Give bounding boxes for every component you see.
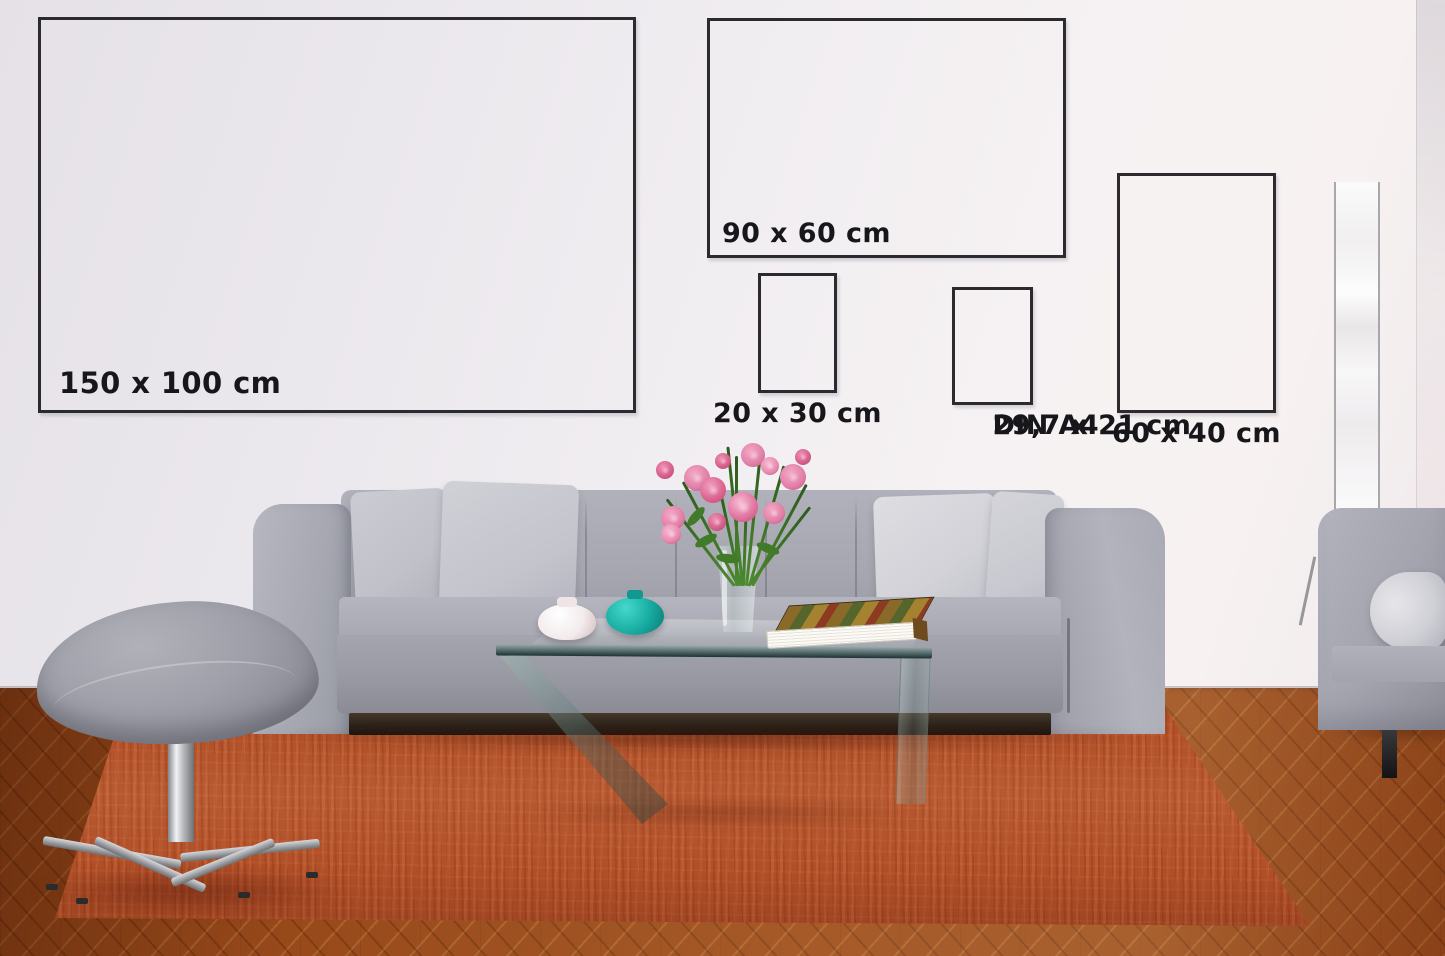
table-leg-right: [895, 656, 930, 804]
sofa-right: [1318, 508, 1445, 730]
throw-pillow: [439, 481, 579, 614]
floor-lamp: [1334, 182, 1380, 510]
flower-bloom: [795, 449, 811, 465]
sofa-seam: [585, 498, 587, 606]
flower-bloom: [715, 453, 731, 469]
poster-size-guide-scene: 150 x 100 cm 90 x 60 cm 20 x 30 cm DIN A…: [0, 0, 1445, 956]
size-label-60x40: 60 x 40 cm: [1112, 418, 1281, 449]
flower-bloom: [656, 461, 674, 479]
size-frame-90x60: 90 x 60 cm: [707, 18, 1066, 258]
size-label-150x100: 150 x 100 cm: [59, 367, 281, 400]
size-frame-60x40: 60 x 40 cm: [1117, 173, 1276, 413]
throw-pillow: [350, 488, 452, 615]
size-frame-din-a4: DIN A4 29,7 x 21 cm: [952, 287, 1033, 405]
stool-foot: [46, 884, 58, 890]
size-label-90x60: 90 x 60 cm: [722, 218, 891, 249]
size-label-20x30: 20 x 30 cm: [713, 398, 882, 429]
teal-vase: [606, 597, 664, 635]
stool-foot: [76, 898, 88, 904]
stool-foot: [306, 872, 318, 878]
sofa-seam: [855, 498, 857, 606]
sofa-right-leg: [1382, 728, 1397, 778]
bolster-pillow: [1370, 572, 1445, 650]
sofa-right-seat: [1332, 646, 1445, 682]
flower-bloom: [728, 492, 758, 522]
size-frame-150x100: 150 x 100 cm: [38, 17, 636, 413]
book-spine: [913, 618, 928, 642]
size-frame-20x30: 20 x 30 cm: [758, 273, 837, 393]
flower-bloom: [700, 477, 726, 503]
stool-foot: [238, 892, 250, 898]
flower-bloom: [661, 524, 681, 544]
book: [765, 597, 930, 655]
white-vase: [538, 604, 596, 640]
stool-pedestal: [168, 738, 194, 842]
flower-bloom: [761, 457, 779, 475]
flower-bloom: [780, 464, 806, 490]
flower-bloom: [708, 513, 726, 531]
sofa-arm-right: [1045, 508, 1165, 734]
table-shadow: [510, 800, 930, 826]
flower-bloom: [763, 502, 785, 524]
